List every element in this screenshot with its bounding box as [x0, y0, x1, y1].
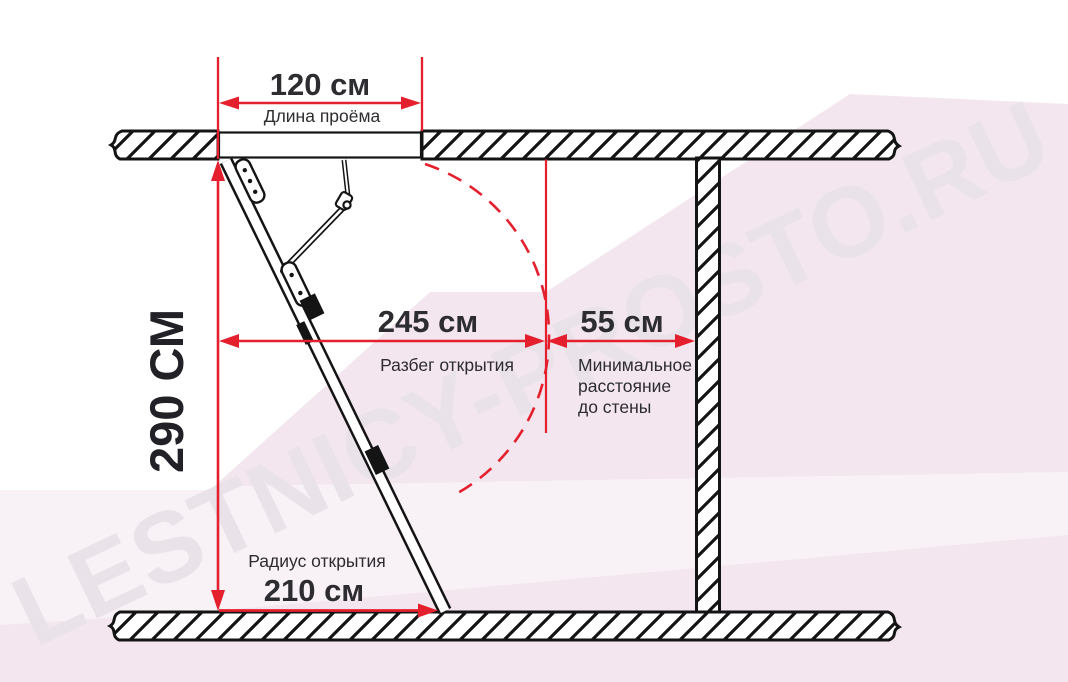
opening-frame — [219, 133, 421, 158]
wall-clearance-caption-line3: до стены — [578, 397, 651, 417]
opening-radius-value: 210 см — [264, 573, 365, 608]
wall-clearance-caption-line2: расстояние — [578, 376, 671, 396]
floor — [110, 612, 899, 640]
ceiling-left — [111, 131, 218, 159]
wall-clearance-value: 55 см — [580, 304, 663, 339]
swing-span-value: 245 см — [378, 304, 479, 339]
swing-span-caption: Разбег открытия — [380, 355, 514, 375]
diagram-canvas: LESTNICY-PROSTO.RU — [0, 0, 1068, 682]
strut-pivot — [343, 201, 350, 208]
ceiling-right — [422, 131, 899, 159]
attic-ladder-diagram: LESTNICY-PROSTO.RU — [0, 0, 1068, 682]
opening-width-caption: Длина проёма — [264, 106, 381, 126]
opening-width-value: 120 см — [270, 67, 371, 102]
opening-radius-caption: Радиус открытия — [248, 551, 386, 571]
ceiling-height-value: 290 СМ — [140, 309, 193, 473]
wall — [697, 158, 720, 612]
wall-clearance-caption-line1: Минимальное — [578, 355, 692, 375]
